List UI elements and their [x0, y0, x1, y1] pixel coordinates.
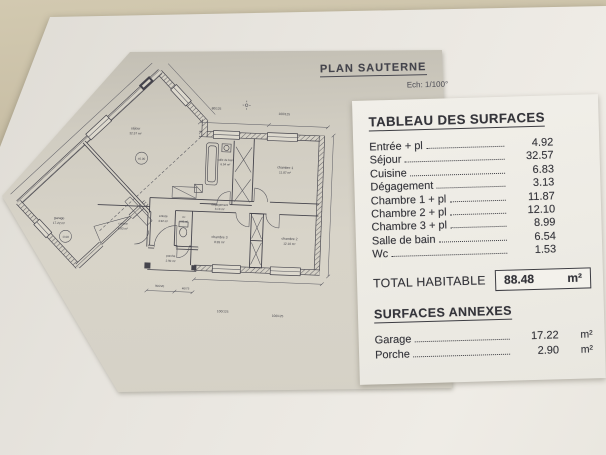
row-unit [554, 171, 588, 172]
row-unit [555, 211, 589, 212]
surface-rows: Entrée + pl4.92 Séjour32.57 Cuisine6.83 … [369, 135, 590, 262]
row-label: Porche [375, 347, 410, 363]
row-unit [556, 225, 590, 226]
row-value: 2.90 [515, 343, 559, 359]
row-label: Cuisine [370, 167, 407, 181]
total-value: 88.48 [504, 272, 534, 287]
photo-background: ±0.00 -0.08 séjour 32.57 m² garage 17.22… [0, 0, 606, 455]
row-value: 12.10 [511, 203, 555, 218]
row-label: Garage [374, 332, 411, 348]
row-unit: m² [559, 342, 593, 358]
dotted-leader [413, 353, 510, 357]
row-value: 32.57 [509, 150, 553, 165]
row-label: Entrée + pl [369, 140, 423, 155]
total-row: TOTAL HABITABLE 88.48 m² [373, 267, 592, 294]
row-value: 3.13 [510, 177, 554, 192]
dotted-leader [405, 159, 505, 163]
row-unit [553, 144, 587, 145]
row-unit [554, 158, 588, 159]
dotted-leader [450, 213, 506, 216]
dotted-leader [439, 240, 507, 243]
row-value: 8.99 [511, 217, 555, 232]
annex-rows: Garage17.22m² Porche2.90m² [374, 327, 593, 363]
row-label: Salle de bain [372, 234, 436, 249]
row-unit [555, 198, 589, 199]
row-unit [556, 238, 590, 239]
row-value: 6.83 [510, 163, 554, 178]
row-unit [556, 252, 590, 253]
row-value: 6.54 [512, 230, 556, 245]
table-sheet-wrap: TABLEAU DES SURFACES Entrée + pl4.92 Séj… [0, 0, 606, 455]
total-unit: m² [567, 270, 582, 284]
dotted-leader [414, 338, 509, 342]
dotted-leader [391, 253, 507, 257]
dotted-leader [450, 226, 506, 229]
row-label: Séjour [370, 154, 402, 168]
dotted-leader [410, 173, 505, 177]
row-unit [554, 185, 588, 186]
total-label: TOTAL HABITABLE [373, 273, 486, 290]
total-value-box: 88.48 m² [495, 267, 592, 291]
dotted-leader [436, 186, 505, 189]
row-unit: m² [558, 327, 592, 343]
row-label: Wc [372, 248, 388, 262]
row-value: 4.92 [509, 136, 553, 151]
row-value: 11.87 [511, 190, 555, 205]
table-title: TABLEAU DES SURFACES [368, 110, 545, 132]
dotted-leader [426, 146, 504, 149]
annex-title: SURFACES ANNEXES [374, 303, 512, 323]
row-label: Chambre 3 + pl [371, 220, 447, 236]
row-value: 17.22 [514, 328, 558, 344]
row-value: 1.53 [512, 244, 556, 259]
dotted-leader [449, 199, 505, 202]
surface-table-sheet: TABLEAU DES SURFACES Entrée + pl4.92 Séj… [352, 94, 606, 385]
